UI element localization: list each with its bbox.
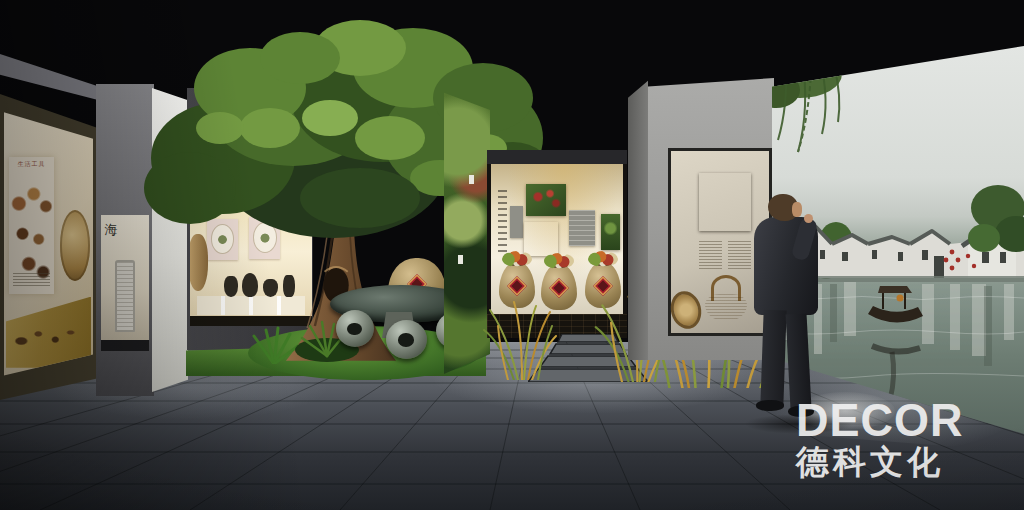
dark-pottery	[242, 273, 258, 298]
stone-stool	[386, 320, 427, 359]
dark-pottery	[224, 276, 237, 297]
niche-base	[101, 340, 150, 351]
green-plant-photo	[601, 214, 620, 250]
left-case-interior: 生活工具	[4, 112, 93, 375]
jar-red-seal	[549, 278, 569, 298]
stool-hole	[347, 323, 361, 336]
hand	[804, 214, 813, 223]
face-profile	[792, 202, 802, 217]
green-plant-photo	[524, 222, 558, 256]
left-display-case: 生活工具	[0, 94, 97, 400]
stone-stele-exhibit	[115, 260, 134, 332]
logo-wordmark: DECOR	[796, 398, 1020, 444]
historic-bw-photo	[699, 173, 751, 231]
visitor-in-suit	[750, 194, 834, 426]
specimen-label	[458, 255, 463, 264]
ceiling-beam	[0, 54, 98, 100]
tools-exhibit-panel: 生活工具	[9, 157, 54, 294]
logo-chinese-name: 德科文化	[796, 443, 1020, 481]
stone-stool	[336, 310, 374, 347]
specimen-label	[469, 175, 474, 184]
stool-hole	[398, 333, 414, 346]
niche-calligraphy-character: 海	[105, 223, 118, 236]
leg	[760, 310, 786, 407]
shoe	[756, 400, 784, 411]
caption-column	[728, 241, 751, 271]
jar-produce	[502, 251, 532, 267]
jar-produce	[544, 253, 574, 269]
jar-red-seal	[507, 276, 527, 296]
decor-watermark: DECOR 德科文化	[796, 398, 1020, 498]
basket-bowl	[705, 294, 747, 321]
box-side-face	[628, 78, 648, 360]
gold-specimen-table	[6, 297, 92, 368]
woven-tray	[667, 288, 705, 332]
handled-basket	[705, 277, 747, 321]
caption-column	[699, 241, 722, 271]
vertical-calligraphy-strip	[498, 190, 507, 256]
exhibit-panel-title: 生活工具	[9, 161, 54, 167]
berry-plant-photo	[526, 184, 566, 216]
rice-grass-tuft	[478, 296, 558, 380]
dark-pottery	[263, 279, 278, 298]
woven-winnowing-basket	[60, 210, 90, 281]
gray-text-plaque	[510, 206, 523, 238]
exhibition-hall-rendering: 生活工具 海	[0, 0, 1024, 510]
exhibit-caption-lines	[13, 273, 50, 287]
case-lintel	[487, 150, 627, 164]
jar-produce	[588, 251, 618, 267]
gray-text-plaque	[569, 210, 595, 246]
